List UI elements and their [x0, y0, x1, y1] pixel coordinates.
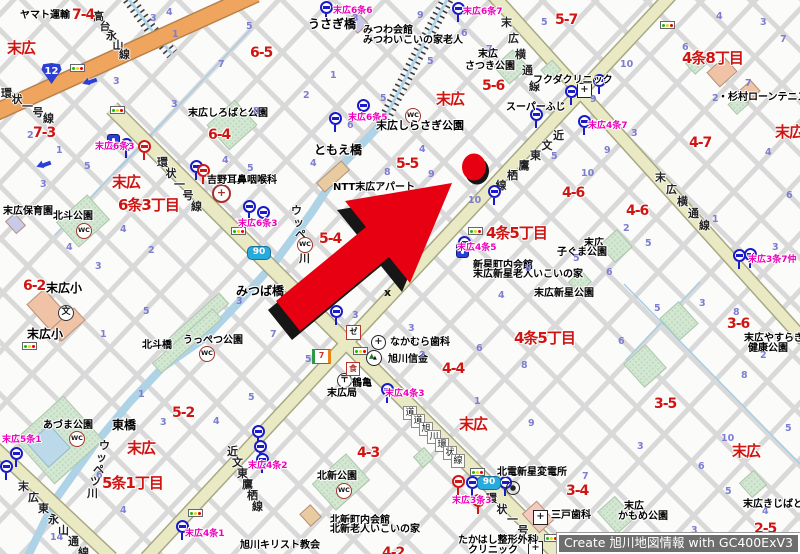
poi-label: 三戸歯科	[551, 511, 591, 521]
block-number: 3	[772, 243, 779, 253]
traffic-light-icon	[470, 468, 485, 476]
bus-stop-icon	[243, 200, 255, 218]
road-name-label: 号	[33, 104, 44, 120]
district-label: 5条1丁目	[102, 476, 163, 491]
bus-stop-icon	[565, 85, 577, 103]
district-label: 5-5	[396, 157, 418, 171]
district-label: 7-4	[72, 8, 94, 22]
road-name-label: 鷹	[519, 157, 530, 173]
poi-label: みつば橋	[236, 285, 284, 297]
bus-stop-label: 末広5条1	[2, 436, 42, 445]
district-label: 4条5丁目	[486, 226, 547, 241]
toilet-icon: WC	[69, 431, 85, 447]
block-number: 4	[419, 145, 426, 155]
road-name-label: 横	[515, 46, 526, 62]
district-label: 3-4	[566, 484, 588, 498]
bus-stop-icon	[330, 305, 342, 323]
block-number: 2	[27, 131, 34, 141]
poi-label: 北斗橋	[142, 341, 172, 351]
block-number: 14	[50, 533, 63, 543]
block-number: 3	[637, 442, 644, 452]
block-number: 3	[352, 14, 359, 24]
block-number: 5	[248, 393, 255, 403]
block-number: 9	[528, 419, 535, 429]
block-number: 5	[551, 152, 558, 162]
block-number: 3	[171, 100, 178, 110]
block-number: 6	[461, 29, 468, 39]
block-number: 4	[762, 507, 769, 517]
district-label: 4-2	[382, 546, 404, 554]
poi-label: NTT末広アパート	[333, 183, 415, 193]
poi-label: フクダクリニック	[533, 76, 613, 86]
poi-label: みつわいこいの家老人	[363, 36, 463, 46]
block-number: 5	[725, 487, 732, 497]
traffic-light-icon	[468, 227, 483, 235]
poi-label: ともえ橋	[314, 144, 362, 156]
poi-label: 北新老人いこいの家	[330, 525, 420, 535]
poi-label: スーパーふじ	[506, 103, 566, 113]
road-name-label: 状	[497, 501, 508, 517]
poi-label: 健康公園	[748, 344, 788, 354]
block-number: 8	[521, 361, 528, 371]
district-label: 5-6	[482, 79, 504, 93]
poi-label: 末広保育園	[3, 207, 53, 217]
block-number: 9	[417, 11, 424, 21]
block-number: 4	[66, 243, 73, 253]
poi-label: 末広局	[327, 389, 357, 399]
prefectural-road-label: 線	[451, 454, 465, 468]
block-number: 10	[721, 434, 734, 444]
block-number: 7	[582, 472, 589, 482]
clinic-icon: +	[533, 510, 548, 525]
traffic-light-icon	[660, 21, 675, 29]
route-90-badge: 90	[477, 476, 501, 490]
toilet-icon: WC	[297, 237, 313, 253]
block-number: 3	[236, 297, 243, 307]
bus-stop-label: 末広6条3	[95, 143, 135, 152]
bus-stop-label: 末広4条3	[385, 390, 425, 399]
bus-stop-label: 末広6条7	[463, 8, 503, 17]
district-label: 末広	[459, 417, 487, 432]
dental-clinic-icon: +	[371, 335, 386, 350]
district-label: 3-5	[654, 397, 676, 411]
block-number: 4	[716, 12, 723, 22]
block-number: 3	[150, 14, 157, 24]
block-number: 3	[95, 262, 102, 272]
road-name-label: 線	[43, 110, 54, 126]
road-name-label: 状	[12, 91, 23, 107]
toilet-icon: WC	[76, 223, 92, 239]
block-number: 4	[765, 148, 772, 158]
block-number: 7	[745, 79, 752, 89]
block-number: 2	[419, 351, 426, 361]
road-name-label: 東	[530, 147, 541, 163]
road-name-label: 線	[252, 498, 263, 514]
road-name-label: 線	[699, 217, 710, 233]
poi-label: 旭川キリスト教会	[240, 541, 320, 551]
poi-label: 末広新星公園	[534, 289, 594, 299]
block-number: 7	[486, 45, 493, 55]
road-name-label: 環	[1, 85, 12, 101]
road-name-label: 広	[508, 30, 519, 46]
district-label: 6-2	[23, 279, 45, 293]
district-label: 末広	[436, 92, 464, 107]
bus-stop-label: 末広3条7仲	[748, 256, 797, 265]
restaurant-icon: 食	[346, 362, 360, 376]
block-number: 2	[623, 224, 630, 234]
district-label: 4-7	[689, 136, 711, 150]
district-label: 4-6	[626, 204, 648, 218]
block-number: 6	[606, 268, 613, 278]
district-label: 4-3	[357, 446, 379, 460]
district-label: 4-4	[442, 362, 464, 376]
poi-label: うっぺつ公園	[183, 336, 243, 346]
block-number: 2	[148, 246, 155, 256]
road-name-label: 広	[666, 181, 677, 197]
hospital-icon: +	[212, 184, 231, 203]
poi-label: 北新公園	[317, 472, 357, 482]
poi-label: さつき公園	[465, 62, 515, 72]
road-name-label: 川	[87, 485, 98, 501]
block-number: 3	[760, 18, 767, 28]
poi-label: あづま公園	[43, 421, 93, 431]
block-number: 1	[56, 146, 63, 156]
road-name-label: 横	[677, 193, 688, 209]
block-number: 8	[741, 371, 748, 381]
block-number: 4	[166, 8, 173, 18]
road-name-label: 線	[191, 198, 202, 214]
block-number: 10	[620, 60, 633, 70]
block-number: 3	[631, 129, 638, 139]
block-number: 4	[310, 159, 317, 169]
bus-stop-icon-red	[452, 475, 464, 493]
district-label: 末広	[127, 441, 155, 456]
poi-label: なかむら歯科	[390, 338, 450, 348]
poi-label: クリニック	[468, 546, 518, 554]
block-number: 2	[760, 351, 767, 361]
block-number: 8	[525, 264, 532, 274]
block-number: 4	[222, 156, 229, 166]
traffic-light-icon	[110, 106, 125, 114]
convenience-store-icon: 7	[312, 349, 331, 364]
block-number: 1	[100, 330, 107, 340]
block-number: 5	[785, 424, 792, 434]
district-label: 4-6	[562, 186, 584, 200]
block-number: 5	[143, 307, 150, 317]
district-label: 末広	[112, 175, 140, 190]
road-name-label: 近	[553, 127, 564, 143]
bus-stop-label: 末広4条7	[588, 122, 628, 131]
block-number: 5	[654, 304, 661, 314]
block-number: 6	[786, 191, 793, 201]
street	[792, 0, 800, 554]
road-name-label: 通	[688, 205, 699, 221]
poi-label: うさぎ橋	[308, 18, 356, 30]
poi-label: 北斗公園	[53, 212, 93, 222]
traffic-light-icon	[188, 509, 203, 517]
bus-stop-label: 末広4条5	[457, 244, 497, 253]
block-number: 6	[347, 121, 354, 131]
district-label: 6-5	[250, 46, 272, 60]
bus-stop-label: 末広6条3	[238, 220, 278, 229]
block-number: 5	[427, 57, 434, 67]
poi-label: 北電新星変電所	[497, 468, 567, 478]
block-number: 5	[305, 355, 312, 365]
block-number: 9	[428, 170, 435, 180]
block-number: 3	[40, 180, 47, 190]
poi-label: 末広きじばと公園	[743, 500, 800, 510]
district-label: 5-7	[555, 13, 577, 27]
toilet-icon: WC	[199, 346, 215, 362]
poi-label: 末広小	[46, 282, 82, 294]
district-label: 末広	[7, 41, 35, 56]
block-number: 9	[604, 146, 611, 156]
block-number: 1	[330, 71, 337, 81]
block-number: 5	[573, 254, 580, 264]
poi-label: かもめ公園	[618, 512, 668, 522]
district-label: 7-3	[33, 126, 55, 140]
block-number: 1	[712, 215, 719, 225]
toilet-icon: WC	[336, 483, 352, 499]
block-number: 1	[172, 30, 179, 40]
block-number: 5	[247, 164, 254, 174]
road-name-label: 一	[22, 98, 33, 114]
road-name-label: 一	[507, 511, 518, 527]
district-label: 5-2	[172, 406, 194, 420]
district-label: 4条8丁目	[682, 51, 743, 66]
block-number: 7	[780, 35, 787, 45]
block-number: 4	[120, 506, 127, 516]
bus-stop-icon	[329, 112, 341, 130]
block-number: 3	[113, 77, 120, 87]
district-label: 末広	[775, 125, 800, 140]
traffic-light-icon	[70, 64, 85, 72]
poi-label: ・杉村ローンテニスクラブ	[718, 93, 800, 103]
bus-stop-label: 末広3条3	[452, 497, 492, 506]
power-station-icon	[506, 481, 520, 495]
poi-label: 末広しらさぎ公園	[376, 120, 464, 131]
block-number: 8	[733, 308, 740, 318]
block-number: 7	[270, 330, 277, 340]
block-number: 5	[84, 162, 91, 172]
map-canvas[interactable]: 高台永山線環状一号線環状一号線環状一号線近文東鷹栖線近文東鷹栖線末広横通線末広横…	[0, 0, 800, 554]
block-number: 8	[384, 168, 391, 178]
poi-label: 東橋	[112, 419, 136, 431]
traffic-light-icon	[22, 342, 37, 350]
block-number: 4	[213, 417, 220, 427]
poi-label: ヤマト運輸	[20, 11, 70, 21]
block-number: 10	[581, 169, 594, 179]
district-label: 末広	[732, 444, 760, 459]
block-number: 3	[408, 324, 415, 334]
map-base-layer	[0, 0, 800, 554]
block-number: 6	[372, 217, 379, 227]
district-label: 5-4	[319, 232, 341, 246]
block-number: 10	[468, 196, 481, 206]
block-number: 3	[352, 311, 359, 321]
block-number: 1	[138, 390, 145, 400]
route-90-badge: 90	[247, 246, 271, 260]
road-name-label: 末	[655, 169, 666, 185]
watermark: Create 旭川地図情報 with GC400ExV3	[557, 533, 800, 554]
poi-label: 子ぐま公園	[557, 248, 607, 258]
block-number: 5	[541, 18, 548, 28]
school-icon: 文	[58, 305, 74, 321]
bus-stop-icon-red	[138, 140, 150, 158]
block-number: 6	[618, 337, 625, 347]
bank-icon: ▲▲	[366, 350, 382, 366]
block-number: 6	[698, 462, 705, 472]
block-number: 7	[218, 60, 225, 70]
bus-stop-label: 末広4条1	[185, 530, 225, 539]
road-name-label: 線	[119, 46, 130, 62]
bus-stop-icon	[0, 460, 12, 478]
road-name-label: 線	[78, 544, 89, 554]
block-number: 4	[498, 291, 505, 301]
block-number: 3	[699, 299, 706, 309]
district-label: 3-6	[727, 317, 749, 331]
block-number: 2	[712, 94, 719, 104]
poi-label: 末広小	[27, 328, 63, 340]
gas-station-icon: ゼ	[346, 325, 361, 340]
bus-stop-icon	[488, 185, 500, 203]
district-label: 6条3丁目	[118, 198, 179, 213]
police-box-mark: x	[384, 286, 391, 299]
block-number: 4	[120, 225, 127, 235]
block-number: 1	[474, 397, 481, 407]
poi-label: 吉野耳鼻咽喉科	[207, 176, 277, 186]
block-number: 6	[476, 344, 483, 354]
block-number: 6	[96, 471, 103, 481]
road-name-label: 栖	[507, 167, 518, 183]
block-number: 6	[682, 43, 689, 53]
block-number: 3	[160, 418, 167, 428]
block-number: 5	[246, 22, 253, 32]
block-number: 2	[303, 91, 310, 101]
bus-stop-label: 末広4条2	[248, 462, 288, 471]
block-number: 5	[645, 239, 652, 249]
block-number: 9	[590, 95, 597, 105]
road-name-label: 通	[522, 62, 533, 78]
district-label: 4条5丁目	[514, 331, 575, 346]
district-label: 6-4	[208, 128, 230, 142]
block-number: 8	[253, 107, 260, 117]
block-number: 5	[380, 94, 387, 104]
